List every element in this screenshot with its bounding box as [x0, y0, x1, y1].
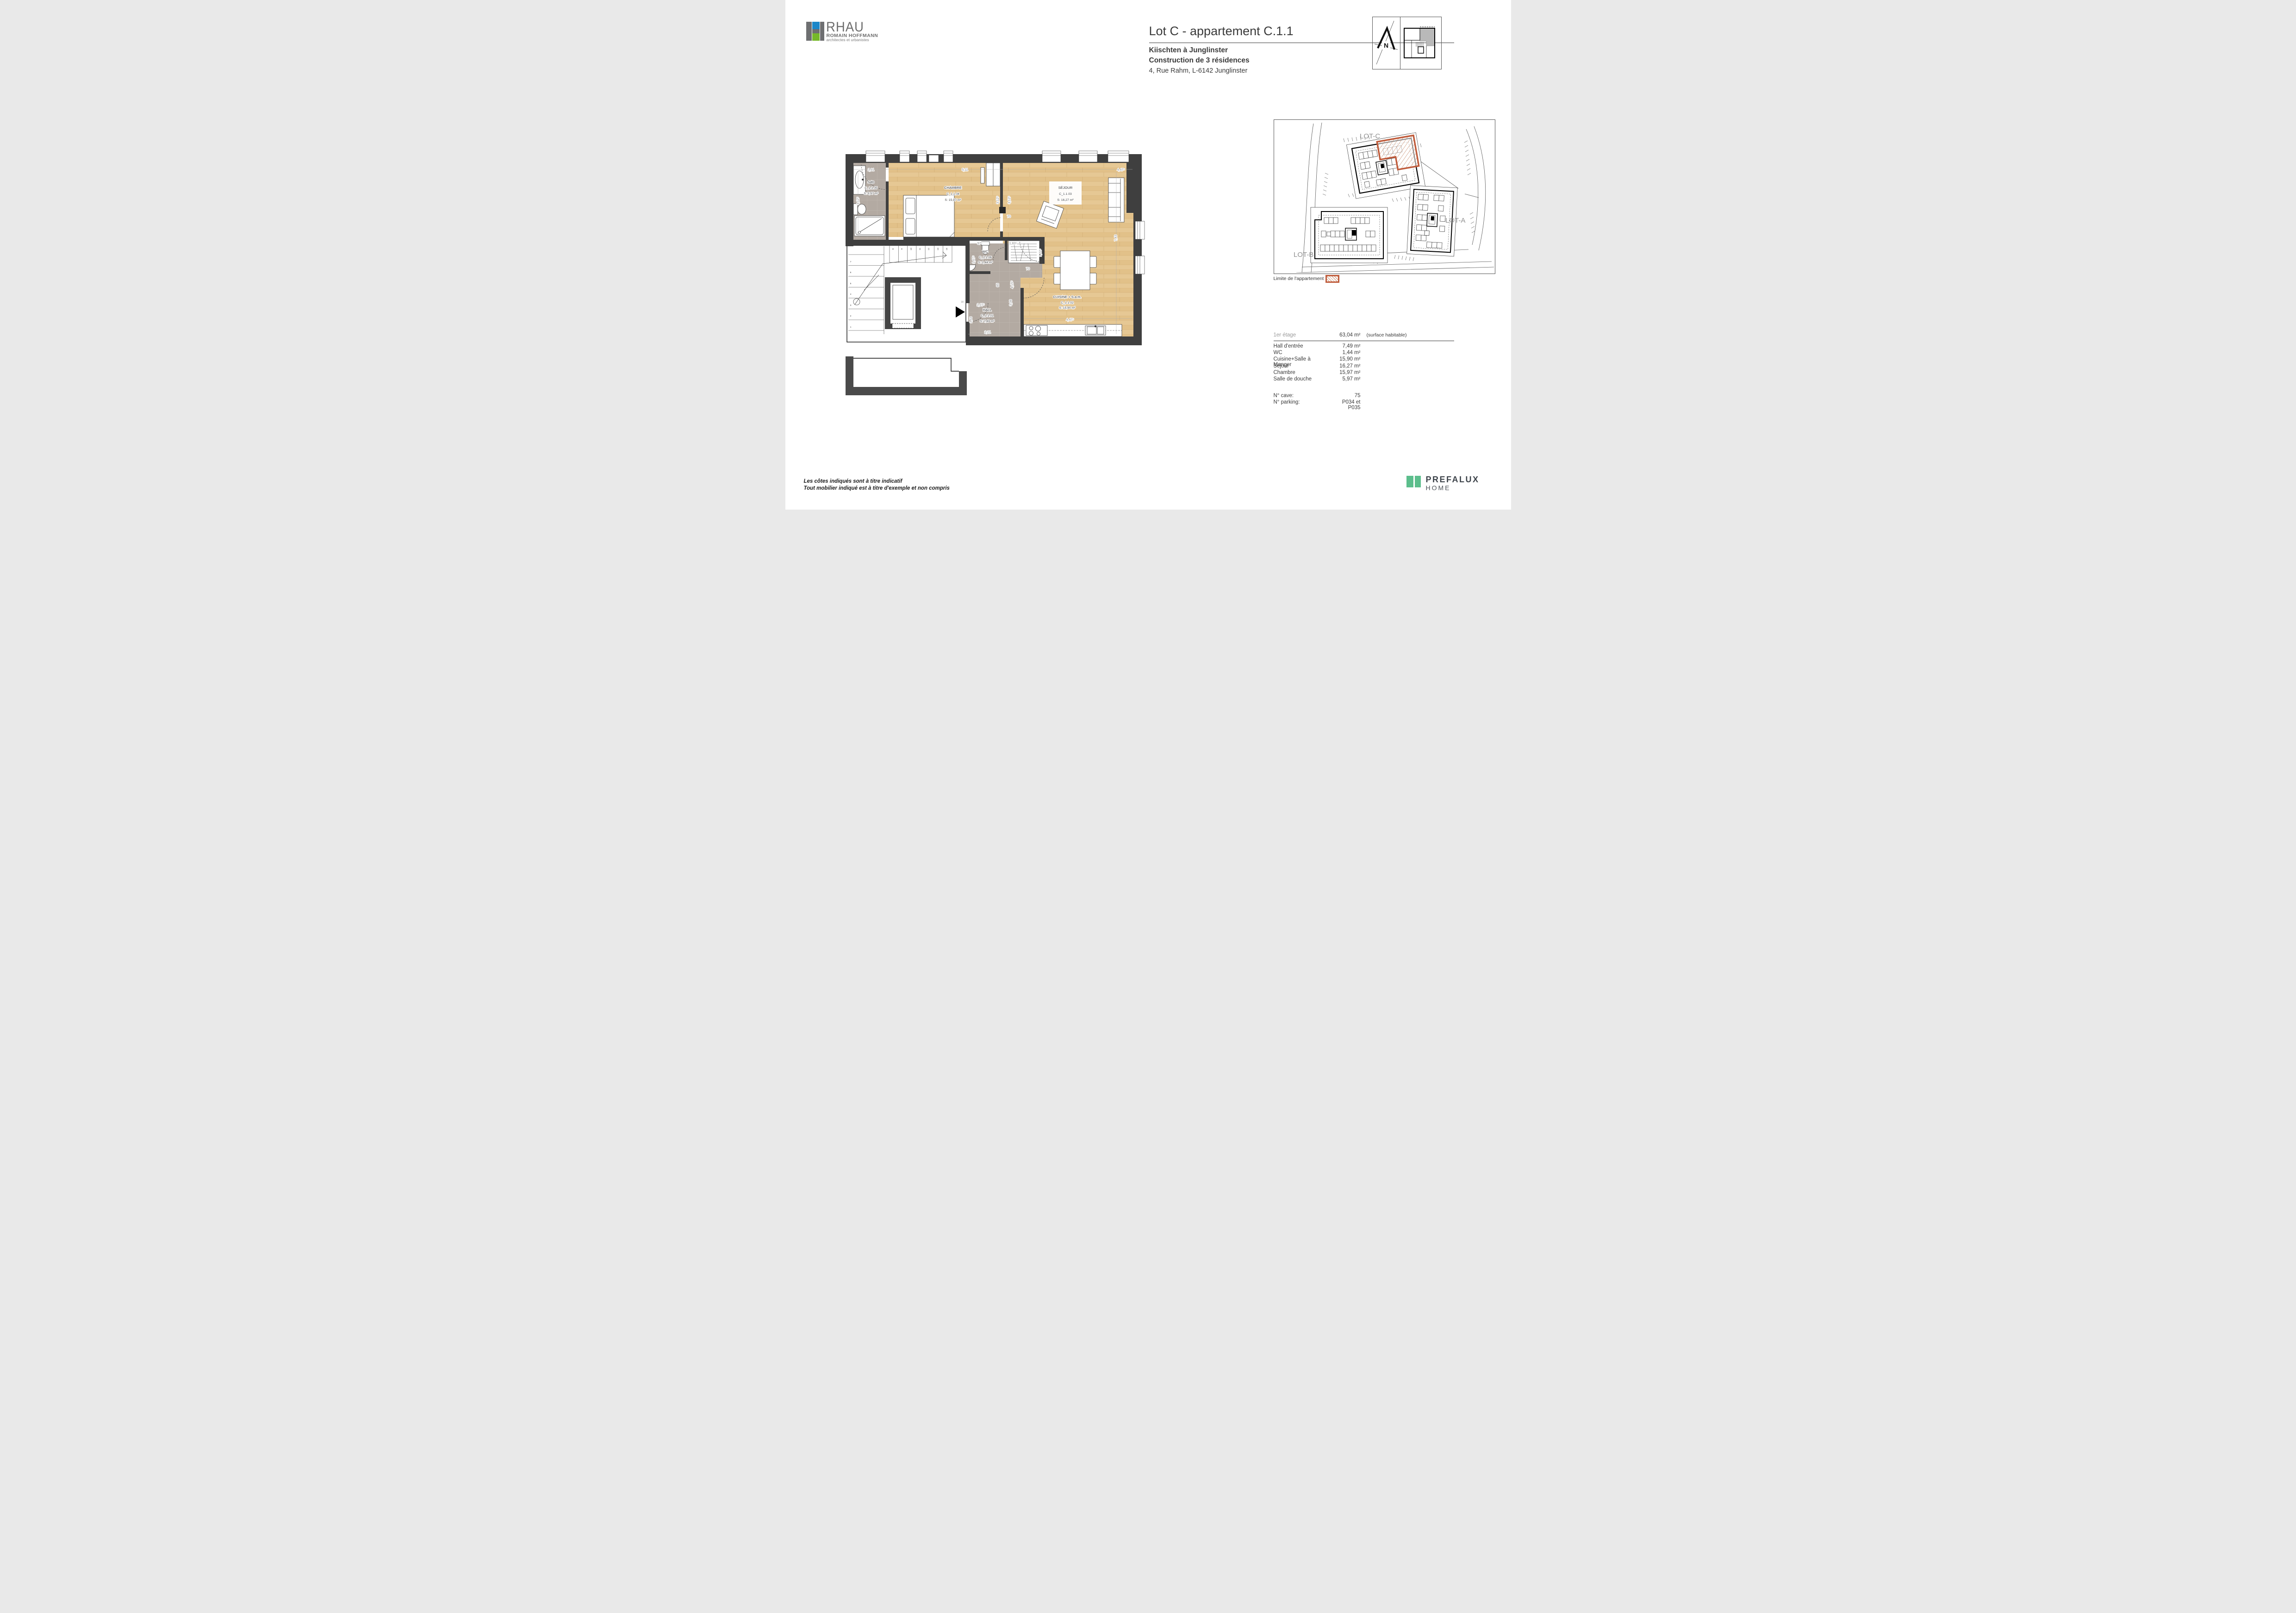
row-label: Séjour [1274, 363, 1329, 369]
row-value: 15,97 m² [1329, 370, 1361, 375]
row-value: 15,90 m² [1329, 356, 1361, 362]
svg-text:C_1.1.02: C_1.1.02 [1061, 301, 1074, 305]
disclaimer-line-1: Les côtes indiqués sont à titre indicati… [804, 479, 902, 484]
prefalux-logo-icon [1406, 476, 1413, 487]
lot-c-label: LOT-C [1360, 132, 1380, 140]
site-building-lot-b [1311, 207, 1388, 263]
svg-text:4,47⁵: 4,47⁵ [1117, 168, 1125, 172]
row-value: P034 et P035 [1329, 399, 1361, 411]
svg-text:13: 13 [937, 248, 939, 250]
row-value: 7,49 m² [1329, 343, 1361, 349]
svg-text:C_1.1.04: C_1.1.04 [946, 193, 959, 196]
svg-text:S: 15,90 m²: S: 15,90 m² [1059, 306, 1076, 310]
svg-text:5: 5 [850, 282, 851, 285]
legend-swatch-icon [1325, 275, 1339, 283]
prefalux-brand: PREFALUX [1426, 475, 1480, 485]
floor-label: 1er étage [1274, 332, 1329, 338]
terrace-walls [846, 356, 967, 395]
svg-text:12: 12 [927, 248, 930, 250]
svg-text:S: 15,97 m²: S: 15,97 m² [945, 199, 961, 202]
svg-text:3: 3 [850, 304, 851, 306]
key-plan-box [1400, 17, 1442, 69]
svg-text:85: 85 [996, 283, 1000, 287]
svg-text:1,67⁵: 1,67⁵ [972, 256, 976, 264]
row-label: N° cave: [1274, 393, 1329, 399]
svg-text:1,91: 1,91 [868, 168, 874, 172]
svg-text:2: 2 [850, 315, 851, 317]
svg-text:1,63: 1,63 [970, 317, 973, 323]
prefalux-brand-line: HOME [1426, 484, 1451, 492]
project-name: Kiischten à Junglinster [1149, 46, 1228, 55]
svg-text:7: 7 [850, 261, 851, 263]
table-row: Salle de douche 5,97 m² [1274, 376, 1454, 383]
svg-text:14: 14 [946, 248, 948, 250]
svg-text:7,43: 7,43 [1114, 235, 1118, 241]
svg-text:4,15⁵: 4,15⁵ [1011, 281, 1014, 289]
svg-text:CHAMBRE: CHAMBRE [944, 186, 962, 190]
svg-text:4,47⁵: 4,47⁵ [1066, 318, 1074, 322]
svg-text:97⁵: 97⁵ [977, 242, 982, 245]
disclaimer-line-2: Tout mobilier indiqué est à titre d'exem… [804, 486, 950, 491]
area-note: (surface habitable) [1367, 332, 1407, 338]
site-plan: LOT-C LOT-A LOT-B [1274, 120, 1494, 273]
row-label: N° parking: [1274, 399, 1329, 405]
row-label: Chambre [1274, 370, 1329, 375]
row-value: 5,97 m² [1329, 376, 1361, 382]
project-description: Construction de 3 résidences [1149, 56, 1250, 65]
svg-text:70: 70 [1007, 215, 1011, 218]
svg-text:HALL: HALL [983, 308, 991, 312]
north-arrow-icon: N [1373, 17, 1399, 68]
svg-text:C_1.1.05: C_1.1.05 [865, 187, 877, 190]
floor-plan: 1 2 3 4 5 6 7 8 9 10 11 12 13 14 [836, 149, 1151, 401]
row-value: 75 [1329, 393, 1361, 399]
kitchen-counter [1024, 324, 1122, 336]
duct [929, 155, 939, 162]
row-value: 16,27 m² [1329, 363, 1361, 369]
key-plan [1400, 17, 1440, 68]
row-label: Hall d'entrée [1274, 343, 1329, 349]
row-label: Salle de douche [1274, 376, 1329, 382]
row-label: WC [1274, 350, 1329, 355]
svg-text:3,12⁵: 3,12⁵ [1008, 196, 1011, 204]
project-address: 4, Rue Rahm, L-6142 Junglinster [1149, 67, 1248, 75]
elevator [885, 277, 921, 329]
svg-text:C_1.1.01: C_1.1.01 [981, 314, 994, 318]
legend-label: Limite de l'appartement [1274, 276, 1324, 281]
svg-text:5,11: 5,11 [962, 168, 968, 172]
svg-text:SÉJOUR: SÉJOUR [1058, 186, 1072, 190]
svg-text:WC: WC [982, 249, 988, 254]
total-area: 63,04 m² [1329, 332, 1361, 338]
svg-text:11: 11 [919, 248, 921, 250]
svg-text:3,12⁵: 3,12⁵ [996, 196, 1000, 204]
svg-text:1,07⁵: 1,07⁵ [977, 304, 984, 307]
svg-text:4: 4 [850, 293, 851, 295]
table-row: Hall d'entrée 7,49 m² [1274, 343, 1454, 350]
areas-table: 1er étage 63,04 m² (surface habitable) H… [1274, 332, 1454, 406]
svg-text:3,08: 3,08 [1009, 299, 1013, 306]
table-row: Cuisine+Salle à Manger 15,90 m² [1274, 356, 1454, 363]
svg-text:1: 1 [850, 326, 851, 328]
rhau-logo-icon [806, 22, 824, 41]
svg-text:SdD: SdD [867, 180, 874, 184]
lot-a-label: LOT-A [1445, 217, 1465, 224]
table-row-cave: N° cave: 75 [1274, 393, 1454, 399]
site-plan-box: LOT-C LOT-A LOT-B [1274, 119, 1495, 274]
svg-text:8: 8 [892, 248, 894, 249]
svg-text:18: 18 [961, 301, 964, 304]
row-value: 1,44 m² [1329, 350, 1361, 355]
prefalux-logo-icon [1415, 476, 1421, 487]
sheet-title: Lot C - appartement C.1.1 [1149, 24, 1294, 38]
lot-b-label: LOT-B [1294, 251, 1313, 259]
svg-text:3,12⁵: 3,12⁵ [857, 197, 860, 205]
svg-text:70: 70 [1026, 268, 1030, 271]
svg-text:C_1.1.06: C_1.1.06 [979, 256, 992, 259]
north-arrow-box: N [1372, 17, 1400, 69]
table-row: Chambre 15,97 m² [1274, 370, 1454, 376]
svg-text:S: 5,97 m²: S: 5,97 m² [864, 192, 878, 195]
table-row: Séjour 16,27 m² [1274, 363, 1454, 370]
svg-text:9: 9 [901, 248, 903, 249]
svg-text:1,22⁵: 1,22⁵ [1039, 249, 1042, 257]
table-row: WC 1,44 m² [1274, 350, 1454, 356]
svg-text:S: 16,27 m²: S: 16,27 m² [1057, 199, 1074, 202]
svg-text:S: 7,49 m²: S: 7,49 m² [980, 320, 995, 323]
svg-text:2,21: 2,21 [984, 331, 991, 334]
stairwell: 1 2 3 4 5 6 7 8 9 10 11 12 13 14 [847, 241, 966, 342]
svg-text:10: 10 [910, 248, 912, 250]
dining-table [1054, 251, 1096, 290]
drawing-sheet: RHAU ROMAIN HOFFMANN architectes et urba… [785, 0, 1511, 510]
svg-text:CUISINE + S.a.m.: CUISINE + S.a.m. [1053, 295, 1081, 299]
shaft [999, 207, 1006, 213]
rhau-profession: architectes et urbanistes [827, 37, 869, 42]
table-header: 1er étage 63,04 m² (surface habitable) [1274, 332, 1454, 341]
svg-text:6: 6 [850, 271, 851, 274]
svg-text:N: N [1383, 42, 1388, 49]
svg-text:S: 1,44 m²: S: 1,44 m² [978, 261, 993, 264]
svg-text:C_1.1.03: C_1.1.03 [1059, 193, 1072, 196]
svg-text:1,83⁵: 1,83⁵ [1009, 242, 1017, 245]
table-row-parking: N° parking: P034 et P035 [1274, 399, 1454, 406]
